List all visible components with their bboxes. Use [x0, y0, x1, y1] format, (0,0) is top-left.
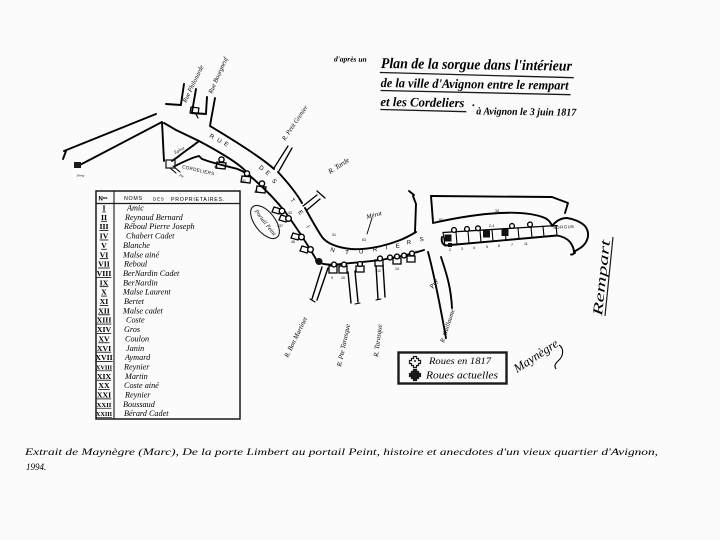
svg-text:d'après un: d'après un: [334, 54, 367, 63]
svg-text:Coste: Coste: [126, 316, 145, 325]
svg-text:V: V: [101, 241, 107, 250]
svg-text:41: 41: [242, 179, 246, 183]
svg-text:XX: XX: [98, 381, 110, 390]
svg-text:14: 14: [395, 267, 399, 271]
svg-text:1994.: 1994.: [26, 462, 46, 472]
svg-text:5: 5: [486, 245, 488, 249]
svg-text:Bérard Cadet: Bérard Cadet: [124, 409, 169, 418]
svg-text:XVI: XVI: [97, 344, 111, 353]
svg-text:XI: XI: [100, 297, 109, 306]
svg-text:VII: VII: [98, 260, 110, 269]
svg-text:6: 6: [498, 244, 500, 248]
svg-text:III: III: [99, 222, 108, 231]
svg-text:XIX: XIX: [97, 372, 112, 381]
svg-text:XII: XII: [98, 306, 110, 315]
svg-text:137: 137: [277, 224, 283, 228]
svg-text:Amic: Amic: [126, 204, 144, 213]
svg-text:Reboul: Reboul: [123, 260, 148, 269]
svg-text:IX: IX: [100, 278, 109, 287]
svg-text:11: 11: [524, 242, 528, 246]
svg-text:45: 45: [291, 240, 295, 244]
svg-text:Reynier: Reynier: [124, 391, 151, 400]
svg-text:Bertet: Bertet: [124, 297, 145, 306]
svg-text:Chabert Cadet: Chabert Cadet: [126, 232, 175, 241]
svg-text:XV: XV: [98, 334, 110, 343]
svg-text:31: 31: [332, 233, 336, 237]
svg-text:Extrait de Maynègre (Marc), De: Extrait de Maynègre (Marc), De la porte …: [24, 447, 658, 457]
svg-text:81: 81: [439, 218, 443, 222]
svg-text:Coulon: Coulon: [125, 334, 149, 343]
svg-text:X: X: [101, 288, 107, 297]
svg-text:24: 24: [415, 250, 419, 254]
svg-text:10: 10: [341, 276, 345, 280]
svg-text:Martin: Martin: [124, 372, 148, 381]
svg-text:Roues actuelles: Roues actuelles: [425, 371, 498, 382]
svg-text:XXI: XXI: [97, 391, 111, 400]
svg-text:43: 43: [288, 211, 292, 215]
svg-text:IV: IV: [100, 232, 109, 241]
svg-text:de la ville d'Avignon entre le: de la ville d'Avignon entre le rempart: [381, 75, 570, 93]
svg-text:34: 34: [495, 209, 499, 213]
svg-text:U: U: [359, 250, 363, 256]
svg-text:I: I: [102, 204, 105, 213]
svg-text:DES: DES: [153, 197, 165, 202]
svg-text:Malse ainé: Malse ainé: [122, 250, 160, 259]
svg-text:E: E: [396, 244, 401, 250]
svg-text:Janin: Janin: [126, 344, 144, 353]
svg-text:Blanche: Blanche: [123, 241, 150, 250]
svg-text:3: 3: [461, 247, 463, 251]
svg-text:2-4: 2-4: [489, 224, 494, 228]
svg-text:S: S: [419, 237, 424, 244]
svg-text:BerNardin Cadet: BerNardin Cadet: [123, 269, 180, 278]
svg-text:9: 9: [331, 276, 333, 280]
svg-text:Reynier: Reynier: [123, 363, 150, 372]
svg-text:Roues en 1817: Roues en 1817: [428, 357, 492, 367]
svg-text:VIII: VIII: [97, 269, 112, 278]
svg-text:Malse cadet: Malse cadet: [122, 306, 164, 315]
svg-text:XIV: XIV: [97, 325, 112, 334]
svg-text:BerNardin: BerNardin: [123, 278, 158, 287]
svg-text:2: 2: [449, 248, 451, 252]
svg-text:VI: VI: [100, 250, 109, 259]
svg-text:40: 40: [214, 165, 218, 169]
svg-text:Coste ainé: Coste ainé: [124, 381, 159, 390]
svg-text:XXII: XXII: [97, 402, 112, 409]
svg-text:4: 4: [473, 246, 475, 250]
svg-text:Gros: Gros: [124, 325, 140, 334]
svg-text:XVIII: XVIII: [96, 365, 113, 372]
svg-text:Boussaud: Boussaud: [123, 400, 156, 409]
svg-text:II: II: [101, 213, 107, 222]
svg-text:63: 63: [362, 238, 366, 242]
svg-text:44: 44: [254, 190, 258, 194]
svg-text:Réboul Pierre Joseph: Réboul Pierre Joseph: [123, 222, 195, 231]
svg-text:XIII: XIII: [97, 316, 112, 325]
svg-text:à Avignon le 3 juin 1817: à Avignon le 3 juin 1817: [476, 106, 577, 118]
svg-text:Plan de la sorgue dans l'intér: Plan de la sorgue dans l'intérieur: [381, 56, 572, 75]
svg-text:XVII: XVII: [95, 353, 112, 362]
svg-text:et les Cordeliers: et les Cordeliers: [380, 94, 464, 110]
svg-text:PROPRIETAIRES.: PROPRIETAIRES.: [171, 197, 225, 203]
svg-text:NOMS: NOMS: [124, 196, 143, 202]
svg-text:Aymard: Aymard: [124, 353, 151, 362]
svg-text:Malse Laurent: Malse Laurent: [122, 288, 171, 297]
svg-text:12: 12: [377, 269, 381, 273]
svg-text:7: 7: [511, 243, 513, 247]
svg-text:Reynaud Bernard: Reynaud Bernard: [124, 213, 184, 222]
svg-text:XXIII: XXIII: [96, 411, 113, 418]
